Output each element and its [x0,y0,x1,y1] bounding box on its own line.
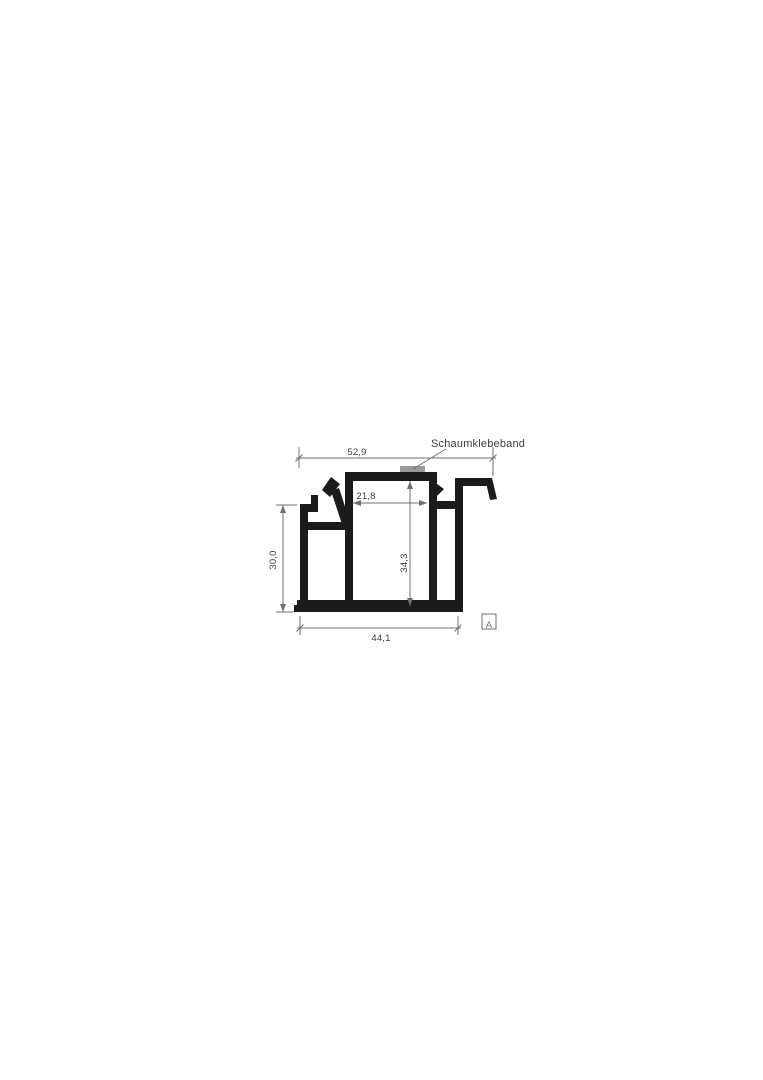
profile-barb [437,484,444,496]
foam-tape-label: Schaumklebeband [431,438,525,450]
profile-top-wall [345,472,437,481]
dim-label-inner-width: 21,8 [356,491,375,502]
foam-tape [400,466,425,472]
profile-right-hook [485,478,497,500]
view-marker-letter: A [486,620,493,631]
profile-bottom-left-lip [294,605,298,612]
profile-right-arm [455,478,487,486]
profile-cross-section [294,472,497,612]
dim-label-bottom-width: 44,1 [371,633,390,644]
arrow-inner-height-up [407,481,413,489]
profile-drawing: 52,9 Schaumklebeband 21,8 30,0 34,3 44,1… [0,0,763,1080]
drawing-page: 52,9 Schaumklebeband 21,8 30,0 34,3 44,1… [0,0,763,1080]
dim-label-inner-height: 34,3 [399,553,410,572]
profile-chamber-right-wall [429,472,437,600]
profile-left-outer-wall [300,504,308,612]
dim-label-top-width: 52,9 [347,447,366,458]
profile-right-web [437,501,455,509]
profile-bottom-wall [297,600,463,612]
profile-chamber-left-wall [345,472,353,600]
profile-left-hook-tab [311,495,318,504]
arrow-inner-width-right [419,500,427,506]
arrow-left-height-up [280,505,286,513]
profile-right-outer-wall [455,478,463,612]
profile-left-hook [300,504,318,512]
tape-leader-line [413,449,446,469]
dim-label-left-height: 30,0 [268,550,279,569]
arrow-left-height-down [280,604,286,612]
